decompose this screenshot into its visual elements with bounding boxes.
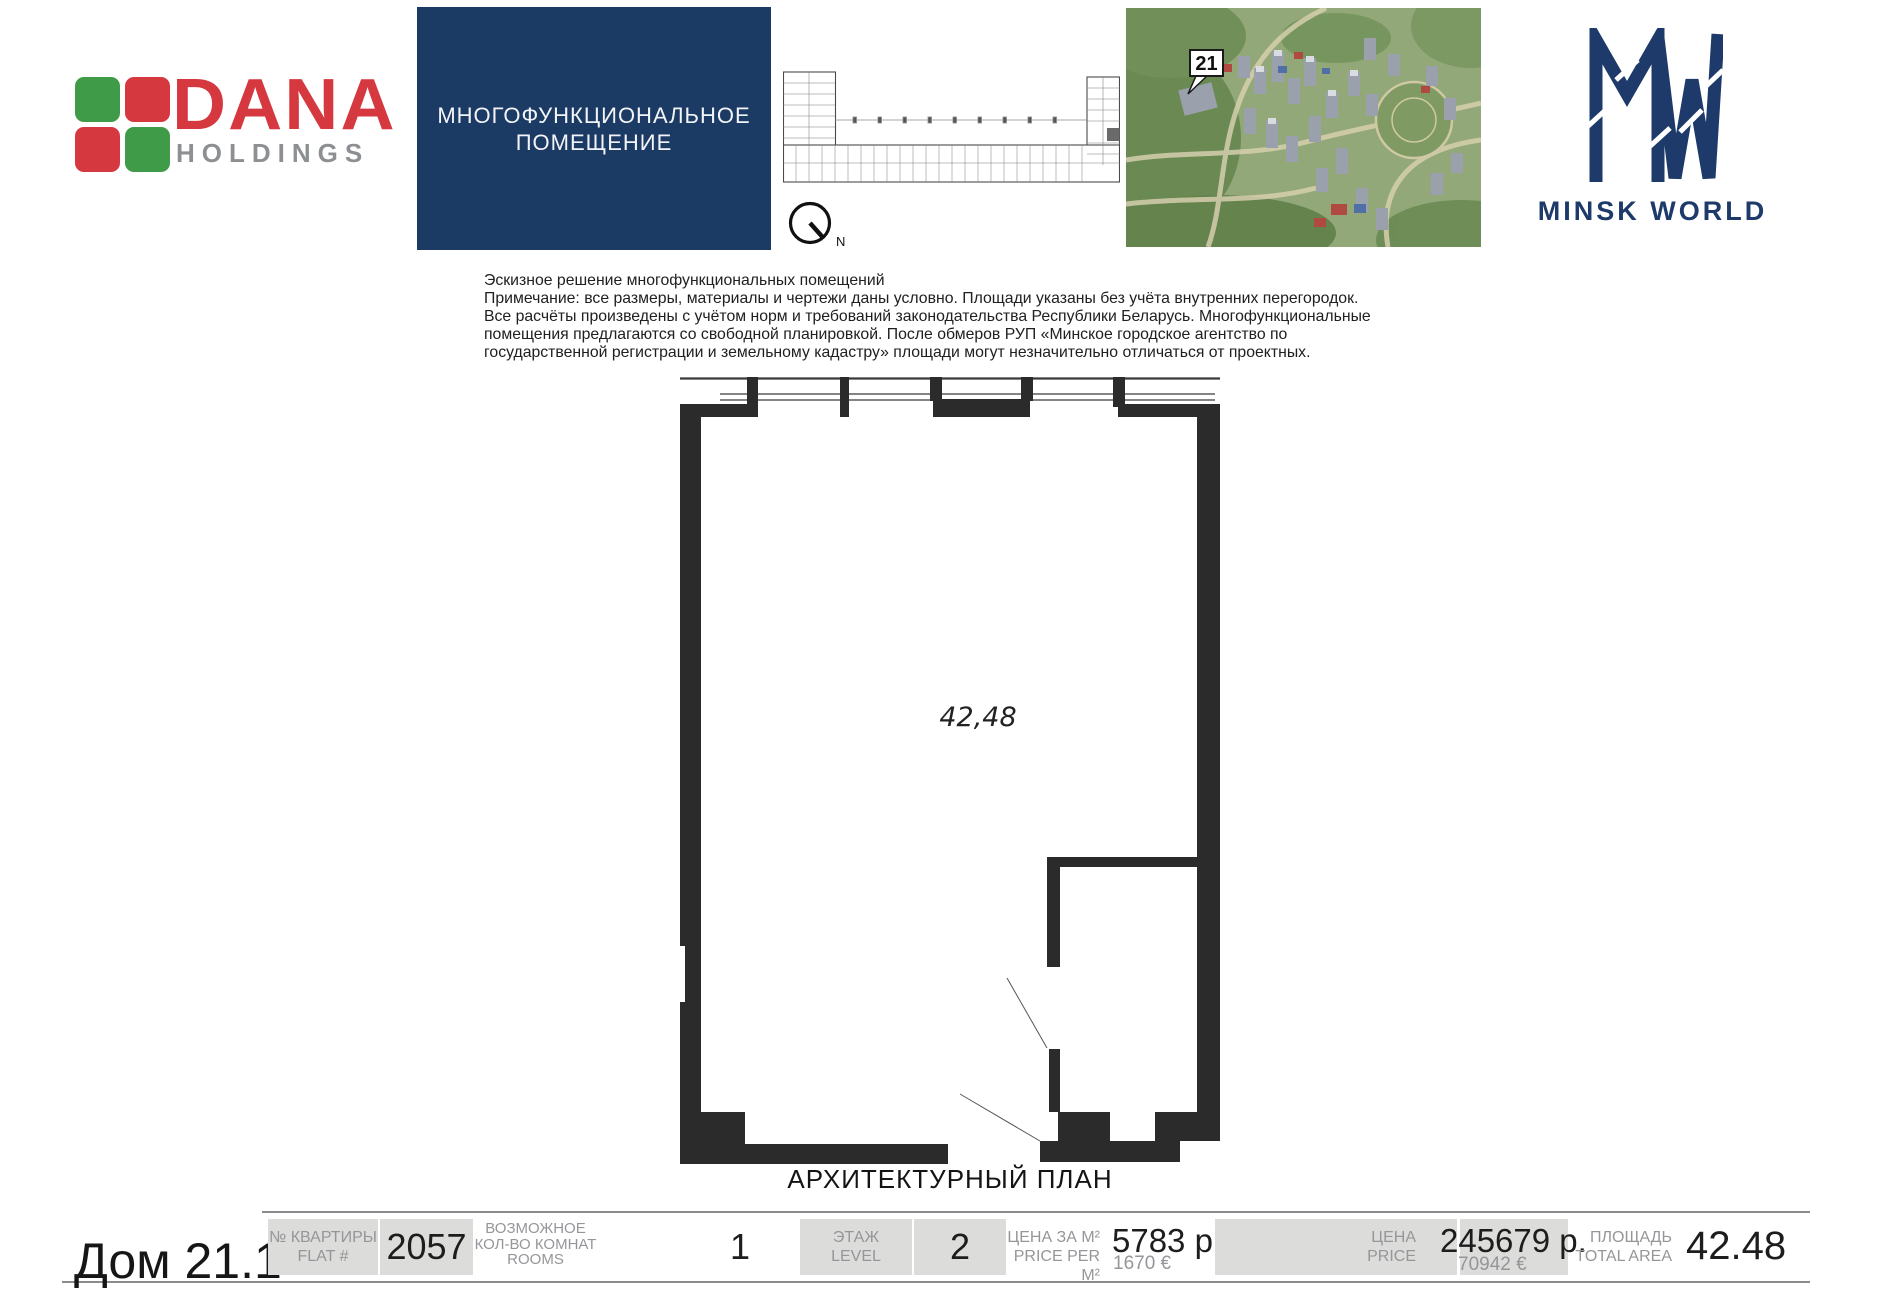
disclaimer-line: помещения предлагаются со свободной план… [484,326,1444,344]
price-per-m2-label-ru: ЦЕНА ЗА М² [1000,1228,1100,1247]
rooms-label-ru1: ВОЗМОЖНОЕ [468,1221,603,1237]
room-area-label: 42,48 [939,702,1016,733]
level-label-box: ЭТАЖ LEVEL [800,1219,912,1275]
plan-caption: АРХИТЕКТУРНЫЙ ПЛАН [680,1164,1220,1195]
dana-logo-subtitle: HOLDINGS [176,138,369,169]
dana-logo-name: DANA [172,64,397,146]
compass-north-label: N [836,234,845,249]
flat-number-label-box: № КВАРТИРЫ FLAT # [268,1219,378,1275]
park-circle [1376,82,1452,158]
level-label-ru: ЭТАЖ [833,1228,879,1247]
disclaimer-line: Все расчёты произведены с учётом норм и … [484,308,1444,326]
terrace-colonnade [835,117,1087,123]
dana-square-red-icon [125,77,170,122]
area-label: ПЛОЩАДЬ TOTAL AREA [1572,1228,1672,1266]
masterplan-aerial-render: 21 [1126,8,1481,247]
flat-number-value-box: 2057 [380,1219,473,1275]
window-glazing-lines [680,379,1220,401]
disclaimer-line: Примечание: все размеры, материалы и чер… [484,290,1444,308]
floor-plan-drawing: 42,48 [680,377,1220,1167]
door-leader-lines [960,978,1047,1141]
disclaimer-line: Эскизное решение многофункциональных пом… [484,272,1444,290]
wall-notch [680,946,685,1002]
minsk-world-logo-text: MINSK WORLD [1510,196,1795,227]
highlighted-unit-marker [1107,128,1120,141]
rooms-value: 1 [715,1226,765,1268]
unit-type-line2: ПОМЕЩЕНИЕ [417,129,771,156]
rooms-label: ВОЗМОЖНОЕ КОЛ-ВО КОМНАТ ROOMS [468,1221,603,1268]
infobar-bottom-rule [62,1281,1810,1283]
dana-square-green-icon [75,77,120,122]
brochure-page: DANA HOLDINGS МНОГОФУНКЦИОНАЛЬНОЕ ПОМЕЩЕ… [0,0,1888,1296]
level-label-en: LEVEL [831,1247,881,1266]
rooms-label-en: ROOMS [468,1252,603,1268]
unit-type-banner: МНОГОФУНКЦИОНАЛЬНОЕ ПОМЕЩЕНИЕ [417,7,771,250]
flat-number-value: 2057 [386,1226,466,1268]
building-21-label: 21 [1195,53,1217,75]
building-title: Дом 21.1 [74,1232,282,1290]
price-label-en: PRICE [1348,1247,1416,1266]
dana-square-green-icon [125,127,170,172]
price-eur: 70942 € [1458,1254,1527,1276]
building-floor-overview-plan [783,66,1120,188]
infobar-top-rule [262,1211,1810,1213]
price-label-ru: ЦЕНА [1348,1228,1416,1247]
dana-square-red-icon [75,127,120,172]
flat-number-label-ru: № КВАРТИРЫ [269,1228,377,1247]
dana-logo-squares-icon [75,77,171,173]
area-value: 42.48 [1686,1224,1786,1269]
level-value-box: 2 [914,1219,1006,1275]
unit-type-line1: МНОГОФУНКЦИОНАЛЬНОЕ [417,102,771,129]
price-label: ЦЕНА PRICE [1348,1228,1416,1266]
price-per-m2-label: ЦЕНА ЗА М² PRICE PER M² [1000,1228,1100,1285]
price-per-m2-eur: 1670 € [1113,1253,1171,1275]
flat-number-label-en: FLAT # [298,1247,349,1266]
level-value: 2 [950,1226,970,1268]
disclaimer-line: государственной регистрации и земельному… [484,344,1444,362]
walls [680,377,1220,1164]
minsk-world-monogram-icon [1588,28,1723,186]
rooms-label-ru2: КОЛ-ВО КОМНАТ [468,1237,603,1253]
compass-icon: N [788,200,860,254]
price-per-m2-label-en: PRICE PER M² [1000,1247,1100,1285]
area-label-ru: ПЛОЩАДЬ [1572,1228,1672,1247]
disclaimer-text: Эскизное решение многофункциональных пом… [484,272,1444,362]
area-label-en: TOTAL AREA [1572,1247,1672,1266]
